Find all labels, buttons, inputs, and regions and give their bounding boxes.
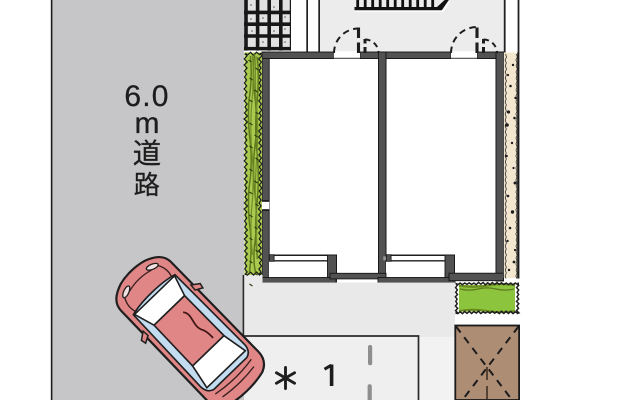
svg-text:m: m xyxy=(135,107,160,140)
